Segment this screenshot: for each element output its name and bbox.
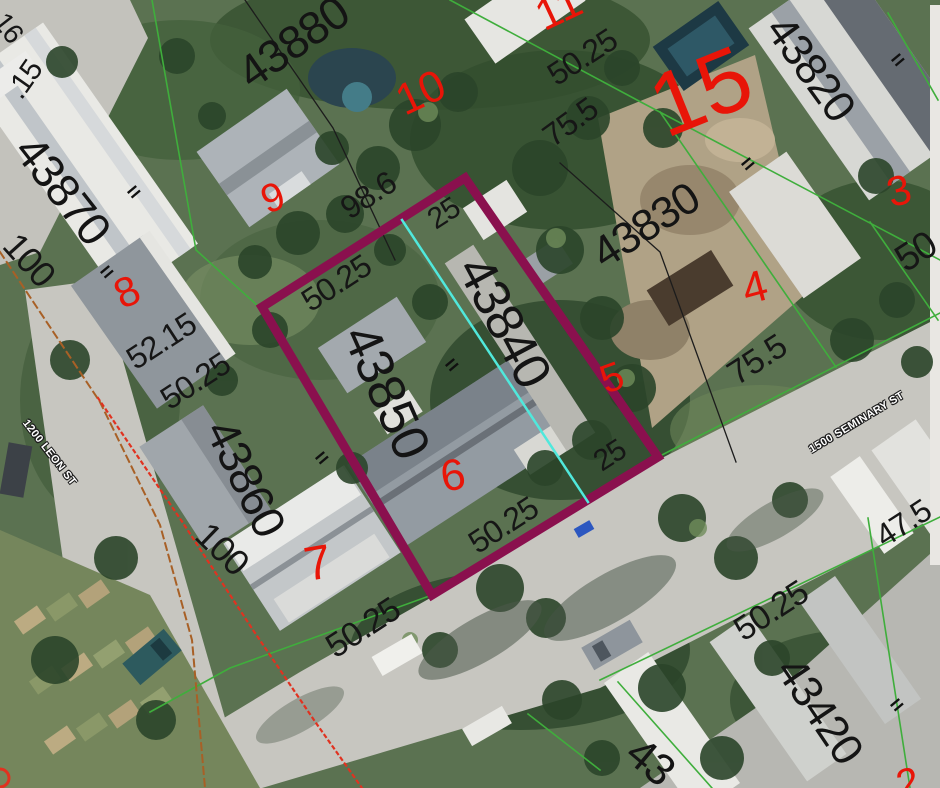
map-labels: 4388043870438604385043840438304382043420… <box>0 0 940 788</box>
dim-partial-16: 16 <box>0 8 28 48</box>
survey-tick-7: = <box>885 692 909 717</box>
dim-50-25-lot7: 50.25 <box>320 592 406 664</box>
dim-50-25-parcel-top: 50.25 <box>296 249 376 317</box>
dim-47-5: 47.5 <box>870 494 936 553</box>
survey-tick-1: = <box>122 179 146 204</box>
lot-number-9: 9 <box>256 175 291 220</box>
lot-number-11: 11 <box>529 0 589 39</box>
parcel-number-43880: 43880 <box>229 0 356 96</box>
parcel-map-canvas[interactable]: 4388043870438604385043840438304382043420… <box>0 0 940 788</box>
street-label-seminary-st: 1500 SEMINARY ST <box>808 390 907 455</box>
lot-number-partial-2: 2 <box>892 761 924 788</box>
survey-tick-5: = <box>886 47 910 72</box>
dim-98-6: 98.6 <box>335 166 401 225</box>
dim-25-top: 25 <box>423 193 466 235</box>
dim-50-right-edge: 50 <box>889 225 940 279</box>
dim-100-upper: 100 <box>0 227 61 294</box>
parcel-number-43850: 43850 <box>334 318 438 467</box>
lot-number-7: 7 <box>301 538 336 590</box>
lot-number-10: 10 <box>390 63 453 124</box>
dim-50-25-parcel-bottom: 50.25 <box>463 491 543 559</box>
lot-number-6: 6 <box>437 452 469 500</box>
parcel-number-43420: 43420 <box>768 650 870 772</box>
lot-number-15: 15 <box>638 32 765 153</box>
dim-75-5-upper: 75.5 <box>537 92 603 152</box>
lot-number-3: 3 <box>882 168 915 215</box>
dim-50-25-southeast: 50.25 <box>728 575 814 647</box>
parcel-number-43820: 43820 <box>758 9 863 130</box>
parcel-number-43840: 43840 <box>448 248 559 396</box>
dim-75-5-right: 75.5 <box>722 329 793 391</box>
survey-tick-4: = <box>310 445 334 470</box>
parcel-number-partial-43: 43 <box>618 730 682 788</box>
lot-number-5: 5 <box>595 355 630 400</box>
parcel-number-43830: 43830 <box>585 176 707 277</box>
lot-number-4: 4 <box>737 264 772 313</box>
dim-partial-15: .15 <box>2 56 49 105</box>
dim-25-southeast: 25 <box>589 435 632 477</box>
street-label-leon-st: 1200 LEON ST <box>20 418 78 488</box>
survey-tick-6: = <box>736 151 760 176</box>
survey-tick-3: = <box>440 352 464 377</box>
